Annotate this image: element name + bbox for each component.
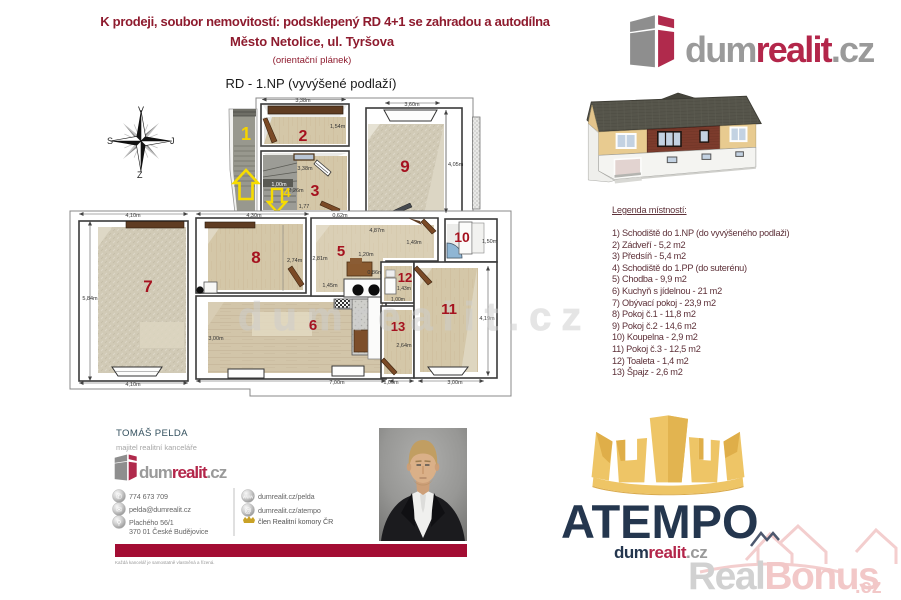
svg-text:4,05m: 4,05m xyxy=(448,162,464,168)
svg-text:dumrealit.cz: dumrealit.cz xyxy=(238,295,591,339)
svg-text:.cz: .cz xyxy=(855,576,882,598)
svg-text:dumrealit.cz/atempo: dumrealit.cz/atempo xyxy=(258,506,321,515)
svg-text:8: 8 xyxy=(251,248,260,267)
svg-text:Plachého 56/1: Plachého 56/1 xyxy=(129,518,174,527)
svg-text:3,38m: 3,38m xyxy=(295,98,311,104)
svg-text:1,45m: 1,45m xyxy=(322,283,338,289)
svg-text:1,50m: 1,50m xyxy=(482,239,498,245)
svg-text:6: 6 xyxy=(309,317,317,334)
svg-text:1,20m: 1,20m xyxy=(358,252,374,258)
svg-text:✉: ✉ xyxy=(116,507,122,514)
svg-text:ATEMPO: ATEMPO xyxy=(561,495,759,548)
svg-text:www: www xyxy=(243,495,254,501)
svg-text:dumrealit.cz: dumrealit.cz xyxy=(139,463,227,482)
svg-text:4,87m: 4,87m xyxy=(369,228,385,234)
svg-text:9: 9 xyxy=(400,157,409,176)
svg-text:774 673 709: 774 673 709 xyxy=(129,492,168,501)
svg-text:2: 2 xyxy=(299,128,308,145)
svg-text:1,77: 1,77 xyxy=(299,204,310,210)
svg-text:2,26m: 2,26m xyxy=(288,188,304,194)
svg-text:0,62m: 0,62m xyxy=(332,213,348,219)
svg-text:✆: ✆ xyxy=(116,492,123,501)
svg-text:1,49m: 1,49m xyxy=(406,240,422,246)
svg-text:1: 1 xyxy=(241,124,251,144)
svg-text:1,54m: 1,54m xyxy=(330,124,346,130)
svg-text:4: 4 xyxy=(283,185,291,200)
svg-text:2,64m: 2,64m xyxy=(396,343,412,349)
svg-text:3,38m: 3,38m xyxy=(297,166,313,172)
svg-text:⚲: ⚲ xyxy=(116,519,121,527)
svg-text:13: 13 xyxy=(391,319,405,334)
svg-text:@: @ xyxy=(244,508,251,515)
svg-text:12: 12 xyxy=(398,270,412,285)
svg-text:pelda@dumrealit.cz: pelda@dumrealit.cz xyxy=(129,505,191,514)
svg-text:5: 5 xyxy=(337,243,345,260)
svg-text:2,74m: 2,74m xyxy=(287,258,303,264)
svg-text:dumrealit.cz: dumrealit.cz xyxy=(614,543,707,562)
svg-text:2,81m: 2,81m xyxy=(312,256,328,262)
svg-text:7: 7 xyxy=(143,277,152,296)
svg-text:3,00m: 3,00m xyxy=(208,336,224,342)
svg-text:dumrealit.cz/pelda: dumrealit.cz/pelda xyxy=(258,492,315,501)
svg-text:člen Realitní komory ČR: člen Realitní komory ČR xyxy=(258,517,333,526)
svg-text:1,43m: 1,43m xyxy=(397,286,411,292)
svg-text:11: 11 xyxy=(441,301,457,318)
svg-text:10: 10 xyxy=(454,229,470,245)
svg-text:3: 3 xyxy=(311,183,320,200)
svg-text:370 01 České Budějovice: 370 01 České Budějovice xyxy=(129,527,208,536)
